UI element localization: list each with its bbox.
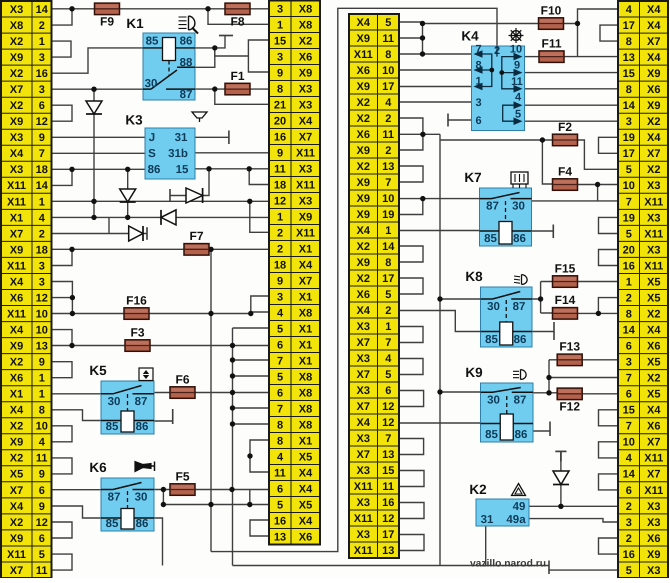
svg-text:4: 4 [385,353,392,365]
svg-text:2: 2 [385,113,391,125]
svg-text:X9: X9 [357,257,370,269]
svg-text:85: 85 [484,233,497,245]
svg-text:X9: X9 [10,437,23,449]
svg-text:X2: X2 [647,373,660,385]
svg-text:X4: X4 [647,132,661,144]
svg-text:85: 85 [146,36,159,48]
svg-text:7: 7 [385,177,391,189]
svg-text:X11: X11 [644,196,663,208]
svg-text:X8: X8 [10,20,23,32]
svg-text:14: 14 [36,180,49,192]
svg-text:85: 85 [106,421,119,433]
svg-text:87: 87 [513,301,526,313]
svg-text:K6: K6 [89,460,107,475]
svg-text:9: 9 [277,275,283,287]
svg-text:X2: X2 [10,357,23,369]
svg-text:3: 3 [277,291,283,303]
svg-text:86: 86 [180,36,193,48]
svg-text:12: 12 [274,195,286,207]
svg-text:X2: X2 [647,116,660,128]
svg-text:X3: X3 [10,132,23,144]
svg-text:5: 5 [385,17,391,29]
svg-text:X2: X2 [10,453,23,465]
svg-text:6: 6 [39,100,45,112]
svg-text:12: 12 [36,116,48,128]
svg-text:X9: X9 [10,52,23,64]
svg-text:X11: X11 [644,228,663,240]
svg-text:K3: K3 [125,113,143,128]
svg-text:X7: X7 [647,437,660,449]
svg-text:K8: K8 [465,269,483,284]
svg-text:17: 17 [382,273,394,285]
svg-text:1: 1 [39,196,45,208]
svg-text:20: 20 [623,244,635,256]
svg-text:31b: 31b [168,148,188,160]
svg-text:F14: F14 [555,293,576,307]
svg-text:17: 17 [623,148,635,160]
svg-text:8: 8 [626,36,632,48]
svg-text:10: 10 [510,44,522,56]
svg-text:85: 85 [485,334,498,346]
svg-text:X9: X9 [357,209,370,221]
svg-text:K4: K4 [461,29,479,44]
svg-text:F13: F13 [559,340,580,354]
svg-text:X8: X8 [299,403,312,415]
svg-text:3: 3 [626,517,632,529]
svg-text:12: 12 [382,513,394,525]
svg-text:87: 87 [135,396,148,408]
svg-text:13: 13 [382,545,394,557]
svg-text:2: 2 [39,228,45,240]
svg-text:11: 11 [36,453,48,465]
svg-text:X2: X2 [299,35,312,47]
svg-text:5: 5 [277,323,283,335]
svg-text:85: 85 [106,518,119,530]
svg-text:X4: X4 [299,115,313,127]
svg-text:14: 14 [623,324,636,336]
svg-text:F2: F2 [558,120,572,134]
svg-text:X4: X4 [357,305,371,317]
svg-text:X2: X2 [10,517,23,529]
svg-text:X3: X3 [10,4,23,16]
svg-text:3: 3 [39,52,45,64]
svg-text:49: 49 [513,501,526,513]
svg-text:88: 88 [180,57,193,69]
svg-text:15: 15 [623,68,635,80]
svg-text:4: 4 [626,4,633,16]
svg-text:X4: X4 [357,17,371,29]
svg-text:5: 5 [39,549,45,561]
svg-text:13: 13 [623,52,635,64]
svg-text:X8: X8 [299,19,312,31]
svg-text:X4: X4 [10,276,24,288]
svg-text:14: 14 [623,100,636,112]
svg-text:8: 8 [385,257,391,269]
svg-text:X2: X2 [10,36,23,48]
svg-text:30: 30 [512,201,525,213]
svg-text:4: 4 [515,92,522,104]
svg-text:2: 2 [626,292,632,304]
svg-text:8: 8 [277,83,283,95]
svg-text:11: 11 [274,467,286,479]
svg-text:16: 16 [623,549,635,561]
svg-text:F16: F16 [126,293,147,307]
svg-text:X4: X4 [647,324,661,336]
svg-text:11: 11 [382,481,394,493]
svg-text:X1: X1 [299,355,312,367]
svg-text:X1: X1 [299,323,312,335]
svg-text:X3: X3 [299,99,312,111]
svg-text:X3: X3 [357,465,370,477]
svg-text:X2: X2 [357,113,370,125]
svg-text:4: 4 [277,451,284,463]
svg-text:12: 12 [36,292,48,304]
svg-text:X3: X3 [357,385,370,397]
svg-text:X9: X9 [10,244,23,256]
svg-text:X4: X4 [647,4,661,16]
svg-text:11: 11 [382,129,394,141]
svg-text:X4: X4 [10,148,24,160]
svg-text:86: 86 [514,334,527,346]
svg-text:X6: X6 [299,51,312,63]
svg-text:K9: K9 [465,365,482,380]
svg-text:3: 3 [39,260,45,272]
svg-text:X9: X9 [357,33,370,45]
svg-text:6: 6 [475,115,481,127]
svg-text:X2: X2 [10,68,23,80]
svg-text:X5: X5 [299,499,312,511]
svg-text:12: 12 [36,517,48,529]
svg-text:X2: X2 [647,164,660,176]
svg-text:F8: F8 [230,15,244,29]
svg-text:X11: X11 [644,260,663,272]
svg-text:30: 30 [108,396,121,408]
svg-text:X1: X1 [10,212,23,224]
svg-text:3: 3 [626,357,632,369]
svg-text:13: 13 [382,161,394,173]
svg-text:13: 13 [36,341,48,353]
svg-text:13: 13 [382,449,394,461]
svg-text:1: 1 [385,225,391,237]
svg-text:31: 31 [175,132,188,144]
svg-text:F3: F3 [130,325,144,339]
svg-text:X6: X6 [357,129,370,141]
svg-text:7: 7 [626,373,632,385]
svg-text:X4: X4 [647,20,661,32]
svg-text:X3: X3 [647,244,660,256]
svg-text:3: 3 [475,97,481,109]
svg-text:X6: X6 [10,292,23,304]
svg-text:X3: X3 [299,195,312,207]
svg-text:F7: F7 [189,229,203,243]
svg-text:X3: X3 [647,565,660,577]
svg-text:F11: F11 [541,36,561,50]
svg-text:7: 7 [277,355,283,367]
svg-text:6: 6 [385,385,391,397]
svg-text:X7: X7 [647,36,660,48]
svg-text:19: 19 [623,132,635,144]
svg-text:vazillo.narod.ru: vazillo.narod.ru [470,559,546,570]
svg-text:11: 11 [511,76,523,88]
svg-text:10: 10 [36,324,48,336]
svg-text:X4: X4 [357,225,371,237]
svg-text:X9: X9 [357,177,370,189]
svg-text:2: 2 [277,243,283,255]
svg-text:X4: X4 [647,405,661,417]
svg-text:6: 6 [39,485,45,497]
svg-text:86: 86 [513,233,526,245]
svg-text:X6: X6 [299,531,312,543]
svg-text:10: 10 [382,65,394,77]
svg-text:X4: X4 [10,405,24,417]
svg-text:X2: X2 [357,273,370,285]
svg-text:X4: X4 [299,259,313,271]
svg-text:18: 18 [274,259,286,271]
svg-text:X7: X7 [357,401,370,413]
svg-text:16: 16 [623,260,635,272]
svg-text:X4: X4 [299,515,313,527]
svg-text:X9: X9 [299,211,312,223]
svg-text:X3: X3 [647,517,660,529]
svg-text:X5: X5 [299,451,312,463]
svg-text:11: 11 [36,565,48,577]
svg-text:1: 1 [277,211,283,223]
svg-text:2: 2 [277,227,283,239]
svg-text:X9: X9 [357,145,370,157]
svg-text:X1: X1 [299,339,312,351]
svg-text:6: 6 [277,483,283,495]
svg-text:X7: X7 [357,369,370,381]
svg-text:7: 7 [277,403,283,415]
svg-text:4: 4 [39,437,46,449]
svg-text:X3: X3 [357,433,370,445]
svg-text:5: 5 [385,289,391,301]
svg-text:8: 8 [626,308,632,320]
svg-text:7: 7 [626,421,632,433]
svg-text:X6: X6 [647,341,660,353]
svg-text:X11: X11 [296,227,315,239]
svg-text:30: 30 [487,394,500,406]
svg-text:9: 9 [39,469,45,481]
svg-text:2: 2 [39,20,45,32]
svg-text:8: 8 [277,419,283,431]
svg-text:X3: X3 [647,212,660,224]
svg-text:86: 86 [515,429,528,441]
svg-text:1: 1 [385,321,391,333]
svg-text:X3: X3 [647,180,660,192]
svg-text:X11: X11 [644,453,663,465]
svg-text:X4: X4 [10,324,24,336]
svg-text:14: 14 [36,4,49,16]
svg-text:X9: X9 [357,193,370,205]
svg-text:14: 14 [623,469,636,481]
svg-text:6: 6 [626,485,632,497]
svg-text:21: 21 [274,99,286,111]
svg-text:F12: F12 [559,400,580,414]
svg-text:9: 9 [39,501,45,513]
svg-text:5: 5 [385,369,391,381]
svg-text:X6: X6 [357,289,370,301]
svg-text:X6: X6 [357,65,370,77]
svg-text:6: 6 [277,387,283,399]
svg-text:X6: X6 [647,84,660,96]
svg-text:X5: X5 [647,389,660,401]
svg-text:2: 2 [385,305,391,317]
svg-text:X3: X3 [299,83,312,95]
svg-text:X3: X3 [10,164,23,176]
svg-text:X3: X3 [357,353,370,365]
svg-text:X6: X6 [647,533,660,545]
svg-text:X2: X2 [357,97,370,109]
svg-text:F1: F1 [230,69,244,83]
svg-text:X11: X11 [354,481,373,493]
svg-text:13: 13 [274,531,286,543]
svg-text:1: 1 [39,36,45,48]
svg-text:49a: 49a [506,514,526,526]
svg-text:X7: X7 [10,485,23,497]
svg-text:12: 12 [382,417,394,429]
svg-text:X9: X9 [647,68,660,80]
svg-text:10: 10 [36,421,48,433]
svg-text:F15: F15 [555,261,576,275]
svg-text:X8: X8 [299,387,312,399]
svg-text:8: 8 [385,49,391,61]
svg-text:19: 19 [382,209,394,221]
svg-text:1: 1 [39,373,45,385]
svg-text:X4: X4 [299,483,313,495]
svg-text:X7: X7 [10,84,23,96]
svg-text:X4: X4 [10,501,24,513]
svg-text:8: 8 [277,435,283,447]
svg-text:30: 30 [487,301,500,313]
svg-text:2: 2 [385,145,391,157]
svg-text:X7: X7 [357,337,370,349]
svg-text:85: 85 [485,429,498,441]
svg-text:X3: X3 [357,529,370,541]
svg-text:3: 3 [39,276,45,288]
svg-text:2: 2 [626,533,632,545]
svg-text:5: 5 [626,565,632,577]
svg-text:4: 4 [626,453,633,465]
svg-text:9: 9 [277,147,283,159]
svg-text:F6: F6 [175,372,189,386]
svg-text:X9: X9 [647,549,660,561]
svg-text:K7: K7 [464,170,481,185]
svg-text:16: 16 [382,497,394,509]
svg-text:X2: X2 [647,308,660,320]
svg-text:X1: X1 [299,435,312,447]
svg-text:17: 17 [382,529,394,541]
svg-text:X4: X4 [299,467,313,479]
svg-text:6: 6 [626,341,632,353]
svg-text:10: 10 [623,180,635,192]
svg-text:14: 14 [382,241,395,253]
svg-text:X2: X2 [10,421,23,433]
svg-text:X5: X5 [647,276,660,288]
svg-text:87: 87 [108,492,121,504]
svg-text:1: 1 [39,389,45,401]
svg-text:X8: X8 [299,419,312,431]
svg-text:X8: X8 [299,3,312,15]
svg-text:30: 30 [145,78,158,90]
svg-text:16: 16 [36,68,48,80]
svg-text:X11: X11 [296,179,315,191]
svg-text:1: 1 [277,19,283,31]
svg-text:11: 11 [382,33,394,45]
svg-text:12: 12 [382,401,394,413]
svg-text:87: 87 [180,89,193,101]
svg-text:J: J [149,132,155,144]
svg-text:X1: X1 [299,291,312,303]
svg-text:5: 5 [277,499,283,511]
svg-text:X6: X6 [647,421,660,433]
svg-text:X7: X7 [357,449,370,461]
svg-text:86: 86 [136,518,149,530]
svg-text:30: 30 [135,492,148,504]
svg-text:X11: X11 [296,147,315,159]
svg-text:X9: X9 [357,81,370,93]
svg-text:3: 3 [39,84,45,96]
svg-text:X7: X7 [10,228,23,240]
svg-text:19: 19 [623,212,635,224]
svg-text:18: 18 [36,244,48,256]
svg-text:X4: X4 [357,417,371,429]
svg-text:5: 5 [626,164,632,176]
svg-text:15: 15 [623,405,635,417]
svg-text:X1: X1 [10,389,23,401]
svg-text:5: 5 [626,228,632,240]
svg-text:2: 2 [626,501,632,513]
svg-text:X11: X11 [7,196,26,208]
svg-text:8: 8 [626,84,632,96]
svg-text:F4: F4 [558,164,572,178]
svg-text:87: 87 [514,394,527,406]
svg-text:X8: X8 [299,371,312,383]
svg-text:4: 4 [385,97,392,109]
svg-text:X11: X11 [7,549,26,561]
svg-text:X3: X3 [357,321,370,333]
svg-text:18: 18 [36,164,48,176]
svg-text:X9: X9 [10,341,23,353]
svg-text:X7: X7 [299,275,312,287]
svg-text:9: 9 [39,132,45,144]
svg-text:X7: X7 [10,565,23,577]
svg-text:X2: X2 [357,161,370,173]
svg-text:X11: X11 [354,513,373,525]
svg-text:X7: X7 [647,469,660,481]
svg-text:X3: X3 [647,501,660,513]
svg-text:X6: X6 [10,373,23,385]
svg-text:X2: X2 [357,241,370,253]
svg-text:15: 15 [382,465,394,477]
svg-text:X9: X9 [10,533,23,545]
svg-text:7: 7 [626,196,632,208]
svg-text:K2: K2 [469,482,486,497]
svg-text:K1: K1 [126,16,144,31]
svg-text:F5: F5 [175,469,189,483]
svg-text:3: 3 [626,116,632,128]
svg-text:X4: X4 [647,52,661,64]
svg-text:X11: X11 [7,180,26,192]
svg-text:X7: X7 [647,148,660,160]
svg-text:4: 4 [277,307,284,319]
svg-text:X1: X1 [299,243,312,255]
svg-text:16: 16 [274,131,286,143]
svg-text:3: 3 [277,51,283,63]
svg-text:X3: X3 [299,163,312,175]
svg-text:X9: X9 [10,116,23,128]
svg-text:86: 86 [148,164,161,176]
